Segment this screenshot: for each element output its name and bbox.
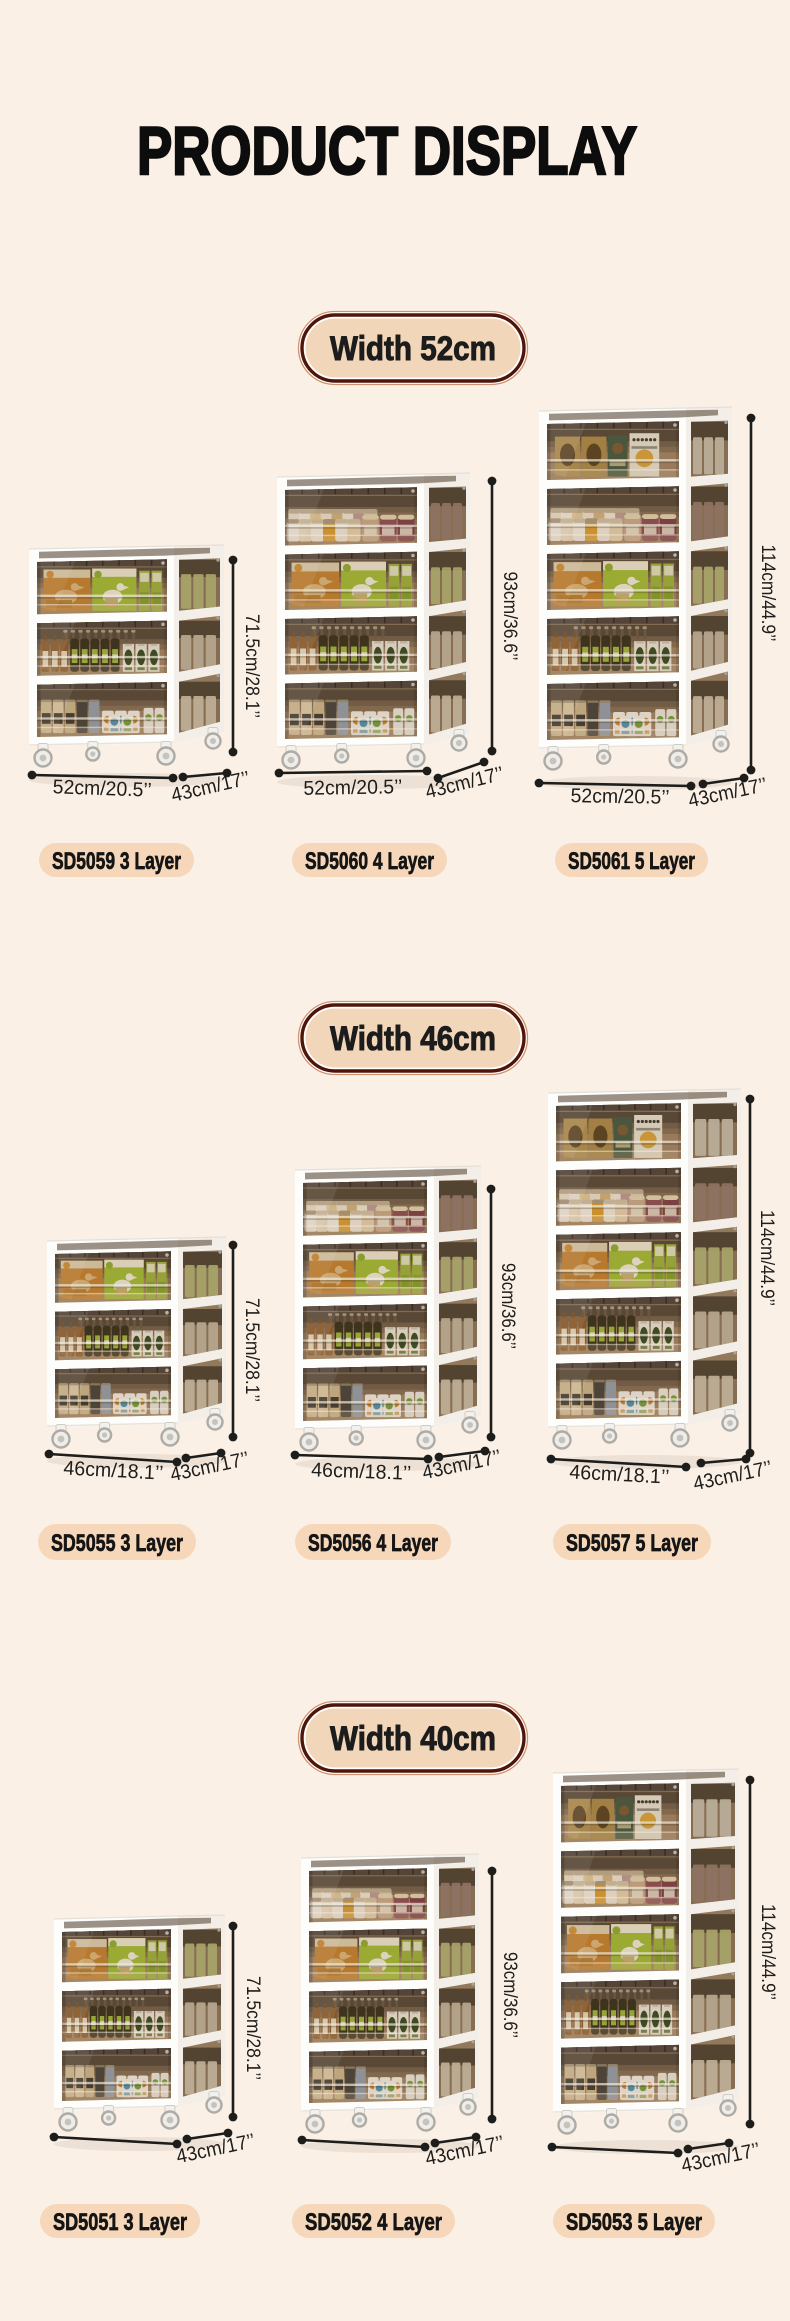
svg-text:Width 46cm: Width 46cm <box>330 1020 496 1058</box>
svg-text:SD5053 5 Layer: SD5053 5 Layer <box>566 2209 702 2236</box>
svg-text:SD5059 3 Layer: SD5059 3 Layer <box>52 848 181 875</box>
svg-text:93cm/36.6’’: 93cm/36.6’’ <box>499 572 520 661</box>
svg-text:SD5057 5 Layer: SD5057 5 Layer <box>566 1530 698 1557</box>
svg-text:52cm/20.5’’: 52cm/20.5’’ <box>303 776 402 800</box>
svg-text:Width 40cm: Width 40cm <box>330 1720 496 1758</box>
svg-text:SD5056 4 Layer: SD5056 4 Layer <box>308 1530 438 1557</box>
svg-text:SD5060 4 Layer: SD5060 4 Layer <box>305 848 434 875</box>
svg-text:46cm/18.1’’: 46cm/18.1’’ <box>311 1459 412 1484</box>
svg-text:52cm/20.5’’: 52cm/20.5’’ <box>570 785 669 809</box>
svg-text:71.5cm/28.1’’: 71.5cm/28.1’’ <box>241 1298 262 1402</box>
svg-text:SD5051 3 Layer: SD5051 3 Layer <box>53 2209 187 2236</box>
svg-text:93cm/36.6’’: 93cm/36.6’’ <box>499 1952 520 2038</box>
svg-text:71.5cm/28.1’’: 71.5cm/28.1’’ <box>241 614 262 718</box>
svg-text:52cm/20.5’’: 52cm/20.5’’ <box>52 776 152 801</box>
svg-text:SD5055 3 Layer: SD5055 3 Layer <box>51 1530 183 1557</box>
svg-text:93cm/36.6’’: 93cm/36.6’’ <box>497 1263 518 1349</box>
svg-text:114cm/44.9’’: 114cm/44.9’’ <box>757 545 778 642</box>
svg-text:Width 52cm: Width 52cm <box>330 330 496 368</box>
svg-text:SD5052 4 Layer: SD5052 4 Layer <box>305 2209 442 2236</box>
svg-text:PRODUCT DISPLAY: PRODUCT DISPLAY <box>137 113 637 189</box>
svg-text:114cm/44.9’’: 114cm/44.9’’ <box>756 1210 777 1306</box>
svg-text:SD5061 5 Layer: SD5061 5 Layer <box>568 848 695 875</box>
svg-text:71.5cm/28.1’’: 71.5cm/28.1’’ <box>242 1976 263 2080</box>
svg-text:114cm/44.9’’: 114cm/44.9’’ <box>757 1904 778 2000</box>
